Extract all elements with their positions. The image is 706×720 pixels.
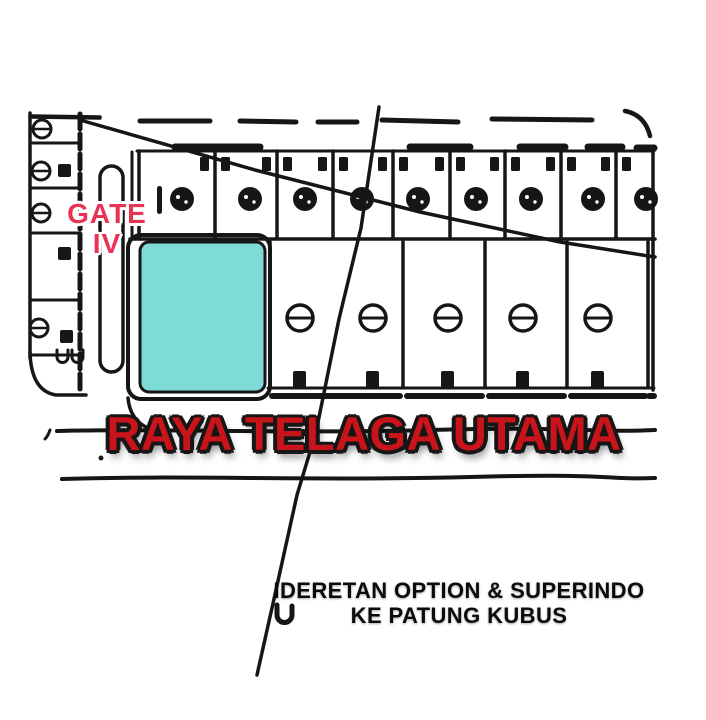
highlighted-plot-group bbox=[128, 235, 270, 399]
gate-road bbox=[45, 114, 148, 439]
gate-island bbox=[100, 166, 123, 372]
gate-label-line1: GATE bbox=[60, 199, 154, 229]
road-line-lower bbox=[62, 476, 655, 479]
gate-label-line2: IV bbox=[60, 229, 154, 259]
gate-label: GATE IV bbox=[60, 199, 154, 258]
caption-line1: IDERETAN OPTION & SUPERINDO bbox=[274, 579, 645, 604]
second-lot-row bbox=[268, 242, 654, 396]
highlighted-plot bbox=[140, 242, 265, 392]
street-name-label: RAYA TELAGA UTAMA bbox=[106, 406, 621, 461]
caption: IDERETAN OPTION & SUPERINDO KE PATUNG KU… bbox=[274, 579, 645, 628]
caption-line2: KE PATUNG KUBUS bbox=[274, 604, 645, 629]
site-plan-map: GATE IV RAYA TELAGA UTAMA IDERETAN OPTIO… bbox=[0, 0, 706, 720]
